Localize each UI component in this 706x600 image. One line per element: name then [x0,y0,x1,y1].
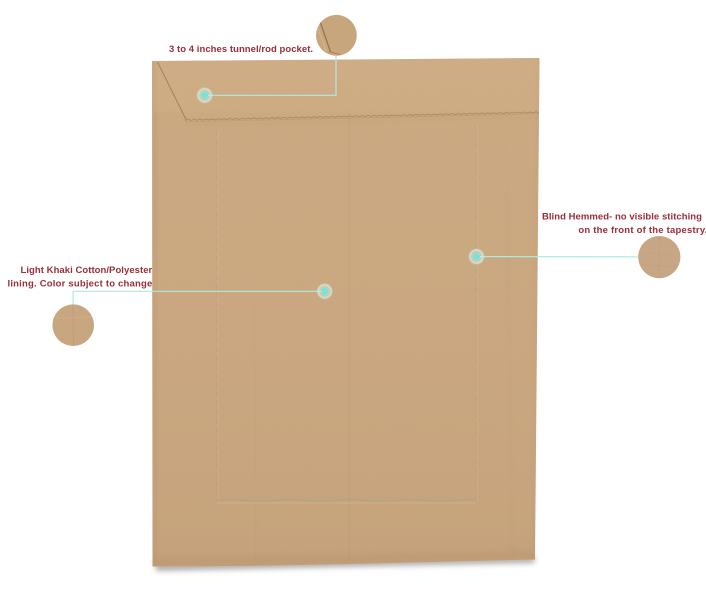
svg-text:on the front of the tapestry.: on the front of the tapestry. [578,225,706,236]
svg-text:3 to 4 inches tunnel/rod pocke: 3 to 4 inches tunnel/rod pocket. [169,44,313,55]
svg-text:Blind Hemmed- no visible stitc: Blind Hemmed- no visible stitching [542,211,702,222]
svg-text:lining. Color subject to chang: lining. Color subject to change [7,278,152,289]
svg-text:Light Khaki Cotton/Polyester: Light Khaki Cotton/Polyester [21,265,153,276]
